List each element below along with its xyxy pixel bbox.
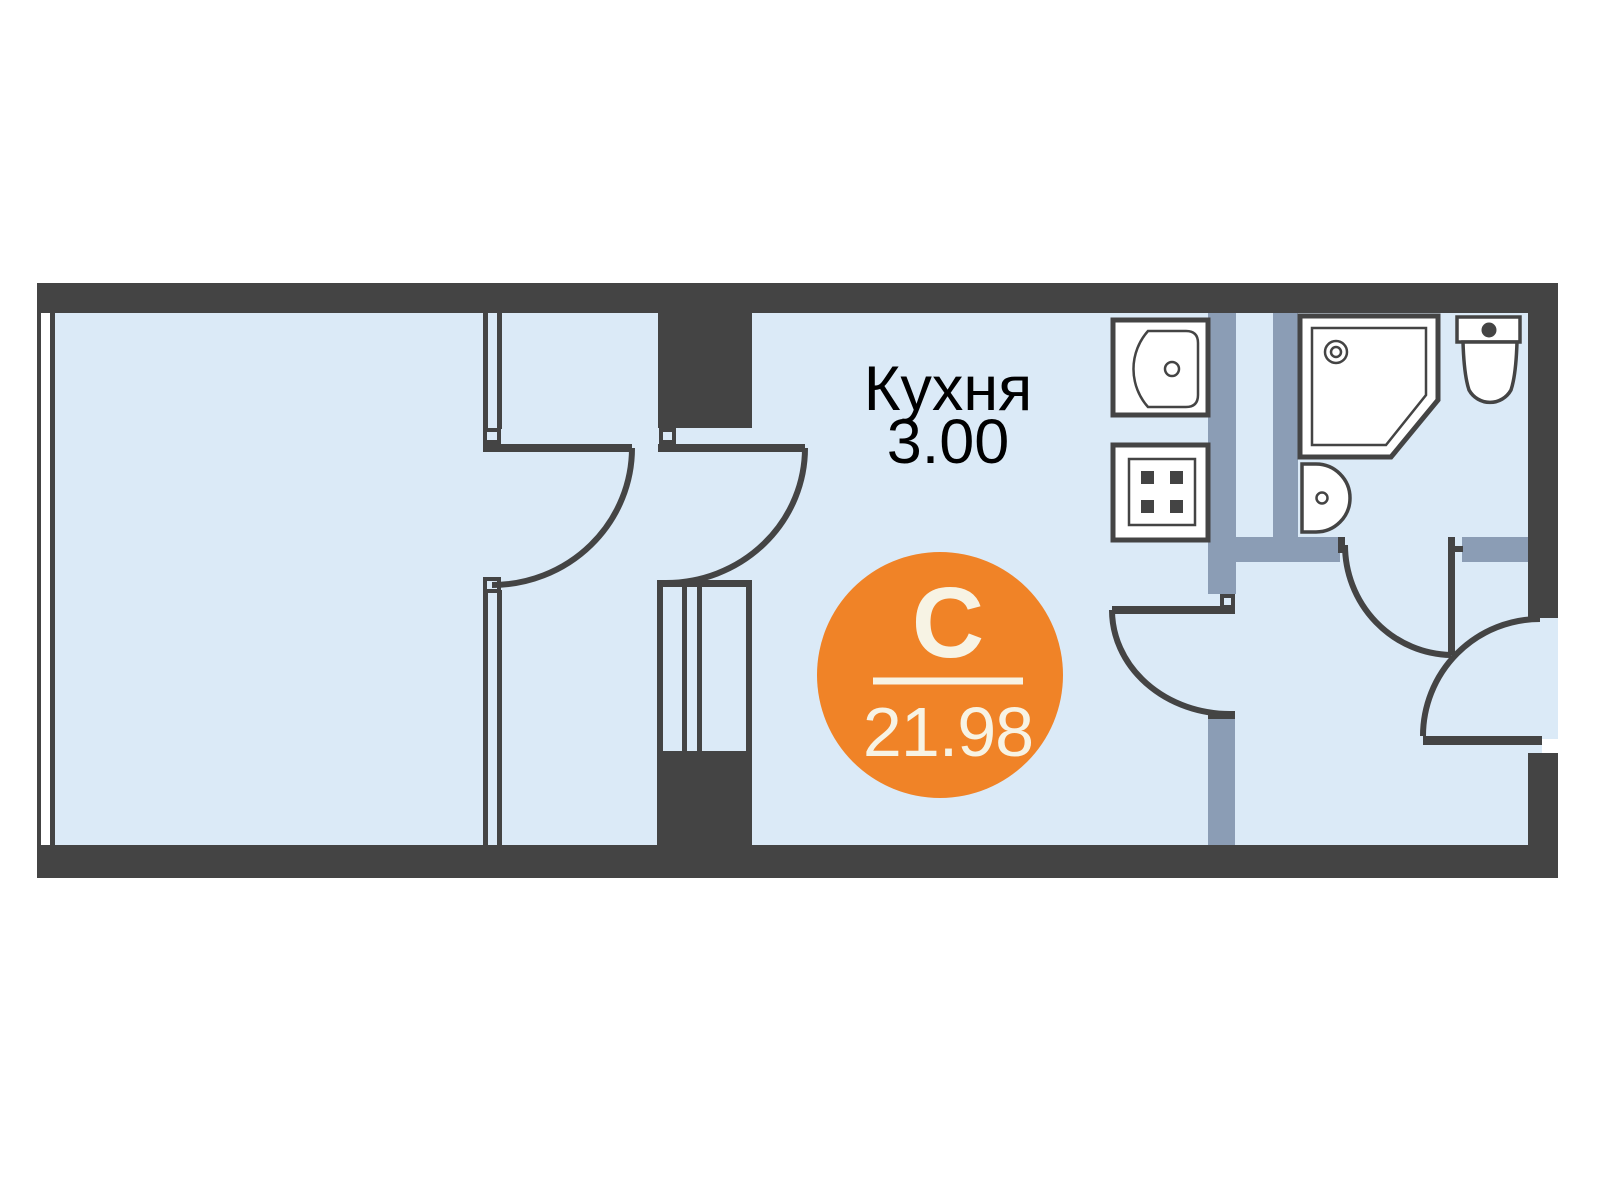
kitchen-label-area: 3.00 <box>887 407 1010 477</box>
wall-top <box>37 283 1558 313</box>
door-leaf <box>1112 606 1235 614</box>
stove <box>1113 445 1208 540</box>
stove-burner <box>1141 471 1154 484</box>
stove-burner <box>1170 500 1183 513</box>
window-glass <box>41 313 50 845</box>
unit-type-letter: С <box>912 567 984 679</box>
window-outer-line <box>37 283 41 878</box>
floor-plan: Кухня 3.00 С 21.98 <box>0 0 1600 1200</box>
door-leaf <box>483 444 632 452</box>
stove-burner <box>1141 500 1154 513</box>
window-inner-line <box>50 313 55 845</box>
floor-plan-drawing: Кухня 3.00 С 21.98 <box>0 0 1600 1200</box>
door-leaf <box>658 444 805 452</box>
kitchen-sink <box>1113 320 1208 415</box>
entry-opening <box>1528 632 1558 739</box>
unit-badge: С 21.98 <box>817 552 1063 798</box>
window-left <box>37 283 55 878</box>
duct-solid-block <box>657 758 752 845</box>
unit-area-value: 21.98 <box>863 693 1033 771</box>
door-leaf <box>1423 736 1542 745</box>
partition-kitchen-hall <box>1208 313 1236 845</box>
partition-block <box>658 313 752 442</box>
door-leaf <box>1448 537 1455 655</box>
door-jamb <box>485 430 499 442</box>
toilet-bowl <box>1463 342 1517 402</box>
stove-burner <box>1170 471 1183 484</box>
door-jamb <box>1542 739 1558 753</box>
door-jamb <box>661 430 674 442</box>
wall-right-upper <box>1528 313 1558 618</box>
toilet-button <box>1482 323 1497 338</box>
kitchen-label: Кухня 3.00 <box>864 354 1033 477</box>
wall-right-lower <box>1528 753 1558 845</box>
door-jamb <box>1222 596 1233 607</box>
door-hinge <box>1448 546 1463 552</box>
wall-bottom <box>37 845 1558 878</box>
